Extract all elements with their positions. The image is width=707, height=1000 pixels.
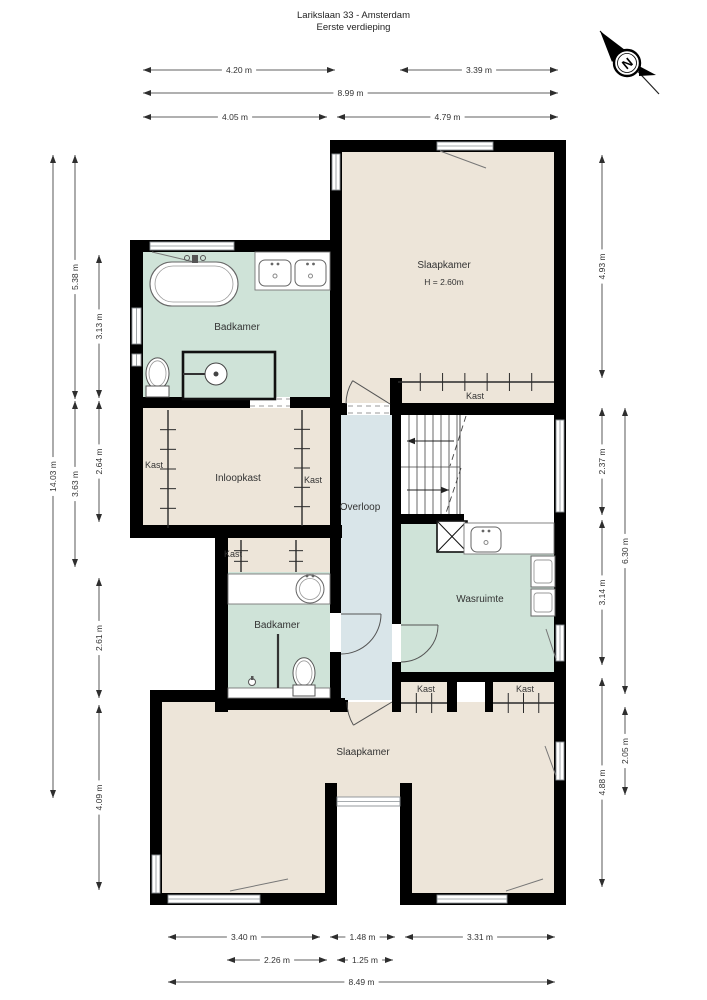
xbox-fixture [437, 521, 467, 552]
dim-label: 14.03 m [48, 461, 58, 492]
dim-arrowhead [96, 690, 102, 698]
room-kast-klein-blok [228, 538, 330, 572]
dim-label: 2.61 m [94, 625, 104, 651]
toilet-tank [146, 386, 169, 397]
faucet-dot [277, 263, 280, 266]
dim-arrowhead [96, 578, 102, 586]
dim-label: 3.40 m [231, 932, 257, 942]
dim-arrowhead [400, 67, 408, 73]
dimension: 5.38 m [70, 155, 81, 399]
dim-arrowhead [96, 514, 102, 522]
dim-label: 4.79 m [435, 112, 461, 122]
dim-arrowhead [547, 979, 555, 985]
dimension: 8.49 m [168, 977, 555, 988]
room-label: Badkamer [254, 620, 300, 631]
wall [130, 240, 143, 538]
dim-arrowhead [387, 934, 395, 940]
dim-arrowhead [168, 979, 176, 985]
dim-arrowhead [622, 408, 628, 416]
dim-arrowhead [143, 67, 151, 73]
room-label: Kast [224, 549, 243, 559]
dim-arrowhead [330, 934, 338, 940]
dim-arrowhead [337, 114, 345, 120]
dim-arrowhead [599, 657, 605, 665]
dim-label: 3.31 m [467, 932, 493, 942]
washer-fixture [531, 556, 555, 587]
dimension: 3.63 m [70, 401, 81, 567]
dim-arrowhead [405, 934, 413, 940]
faucet-dot [306, 263, 309, 266]
dim-arrowhead [622, 686, 628, 694]
room-notch-outside [337, 806, 400, 905]
dim-label: 1.48 m [350, 932, 376, 942]
dim-label: 2.05 m [620, 738, 630, 764]
dim-label: 5.38 m [70, 264, 80, 290]
sink-basin [296, 575, 324, 603]
dimension: 1.25 m [337, 955, 393, 966]
wall [130, 525, 342, 538]
wall [398, 403, 566, 415]
dimension: 4.20 m [143, 65, 335, 76]
room-label: Kast [145, 460, 164, 470]
dimension: 3.13 m [94, 255, 105, 398]
dimension: 4.05 m [143, 112, 327, 123]
room-label: Overloop [340, 502, 381, 513]
dim-label: 4.09 m [94, 785, 104, 811]
faucet-dot [306, 575, 309, 578]
toilet-bowl [146, 358, 169, 389]
dimension: 8.99 m [143, 88, 558, 99]
dim-arrowhead [96, 401, 102, 409]
room-stairwell [401, 415, 554, 514]
dim-arrowhead [550, 67, 558, 73]
dim-label: 2.26 m [264, 955, 290, 965]
dim-label: 3.63 m [70, 471, 80, 497]
dim-label: 1.25 m [352, 955, 378, 965]
room-label: Inloopkast [215, 473, 261, 484]
dim-arrowhead [599, 155, 605, 163]
sink-rect-fixture [471, 527, 501, 552]
dimension: 6.30 m [620, 408, 631, 694]
dim-label: 8.49 m [349, 977, 375, 987]
shower-head-dot [214, 372, 219, 377]
dimension: 4.93 m [597, 155, 608, 378]
dimension: 3.14 m [597, 520, 608, 665]
dimension: 2.37 m [597, 408, 608, 515]
floorplan-page: Larikslaan 33 - Amsterdam Eerste verdiep… [0, 0, 707, 1000]
dim-arrowhead [227, 957, 235, 963]
dim-arrowhead [72, 155, 78, 163]
dimension: 2.64 m [94, 401, 105, 522]
faucet-dot [312, 263, 315, 266]
dim-arrowhead [599, 879, 605, 887]
room-label: Badkamer [214, 322, 260, 333]
wall [392, 662, 401, 712]
dim-arrowhead [599, 370, 605, 378]
floorplan-canvas: SlaapkamerH = 2.60mBadkamerKastInloopkas… [0, 0, 707, 1000]
wall [400, 783, 412, 905]
dimension: 3.40 m [168, 932, 320, 943]
wall [215, 698, 345, 710]
dim-arrowhead [547, 934, 555, 940]
wall [447, 672, 457, 712]
shower-fixture [183, 352, 275, 399]
dim-label: 4.93 m [597, 254, 607, 280]
toilet-fixture [146, 358, 169, 397]
dim-arrowhead [599, 678, 605, 686]
room-label: Slaapkamer [417, 260, 471, 271]
dimension: 2.61 m [94, 578, 105, 698]
shower-enclosure [183, 352, 275, 399]
dim-label: 4.05 m [222, 112, 248, 122]
dim-label: 4.20 m [226, 65, 252, 75]
room-label: Slaapkamer [336, 747, 390, 758]
dim-arrowhead [550, 90, 558, 96]
dim-arrowhead [327, 67, 335, 73]
room-label: Kast [516, 684, 535, 694]
dim-arrowhead [72, 559, 78, 567]
dim-label: 3.14 m [597, 580, 607, 606]
sink-basin [471, 527, 501, 552]
dimension: 3.39 m [400, 65, 558, 76]
toilet-fixture [293, 658, 315, 696]
sink-round-fixture [296, 575, 324, 603]
sink-basin [295, 260, 326, 286]
dimension: 4.88 m [597, 678, 608, 887]
dim-arrowhead [550, 114, 558, 120]
room-label: H = 2.60m [424, 277, 463, 287]
dim-arrowhead [50, 790, 56, 798]
dim-arrowhead [599, 507, 605, 515]
faucet-dot [271, 263, 274, 266]
dim-arrowhead [622, 787, 628, 795]
wall [392, 672, 566, 682]
dim-arrowhead [168, 934, 176, 940]
toilet-tank [293, 685, 315, 696]
faucet-dot [312, 575, 315, 578]
washer-fixture [531, 589, 555, 616]
dimension: 3.31 m [405, 932, 555, 943]
dim-arrowhead [143, 90, 151, 96]
dimension: 14.03 m [48, 155, 59, 798]
dimension: 4.79 m [337, 112, 558, 123]
wall [325, 783, 337, 905]
dim-arrowhead [319, 114, 327, 120]
wall [554, 140, 566, 905]
sink-rect-fixture [259, 260, 291, 286]
dimension: 2.26 m [227, 955, 327, 966]
dim-label: 3.39 m [466, 65, 492, 75]
room-overloop [341, 415, 392, 700]
dim-arrowhead [599, 408, 605, 416]
drain-stem [251, 676, 254, 680]
dim-arrowhead [72, 391, 78, 399]
wall [392, 403, 401, 624]
dim-arrowhead [319, 957, 327, 963]
compass-south-fin [639, 66, 656, 76]
dim-arrowhead [143, 114, 151, 120]
sink-basin [259, 260, 291, 286]
dim-label: 2.37 m [597, 449, 607, 475]
dimension: 2.05 m [620, 707, 631, 795]
dim-arrowhead [337, 957, 345, 963]
room-label: Kast [304, 475, 323, 485]
room-label: Kast [417, 684, 436, 694]
wall [485, 672, 493, 712]
dimension: 4.09 m [94, 705, 105, 890]
dim-arrowhead [312, 934, 320, 940]
dim-arrowhead [96, 390, 102, 398]
spout [192, 255, 198, 263]
faucet-dot [482, 530, 485, 533]
dim-arrowhead [72, 401, 78, 409]
dim-arrowhead [96, 882, 102, 890]
dim-arrowhead [96, 255, 102, 263]
dim-label: 4.88 m [597, 770, 607, 796]
room-label: Wasruimte [456, 594, 504, 605]
dim-label: 2.64 m [94, 449, 104, 475]
wall [215, 538, 228, 712]
dim-arrowhead [50, 155, 56, 163]
dim-arrowhead [622, 707, 628, 715]
dim-label: 3.13 m [94, 314, 104, 340]
dimension: 1.48 m [330, 932, 395, 943]
compass-north-icon: N [600, 31, 659, 94]
dim-arrowhead [385, 957, 393, 963]
room-label: Kast [466, 391, 485, 401]
sink-rect-fixture [295, 260, 326, 286]
faucet-dot [488, 530, 491, 533]
dim-label: 6.30 m [620, 538, 630, 564]
dim-label: 8.99 m [338, 88, 364, 98]
dim-arrowhead [599, 520, 605, 528]
dim-arrowhead [96, 705, 102, 713]
